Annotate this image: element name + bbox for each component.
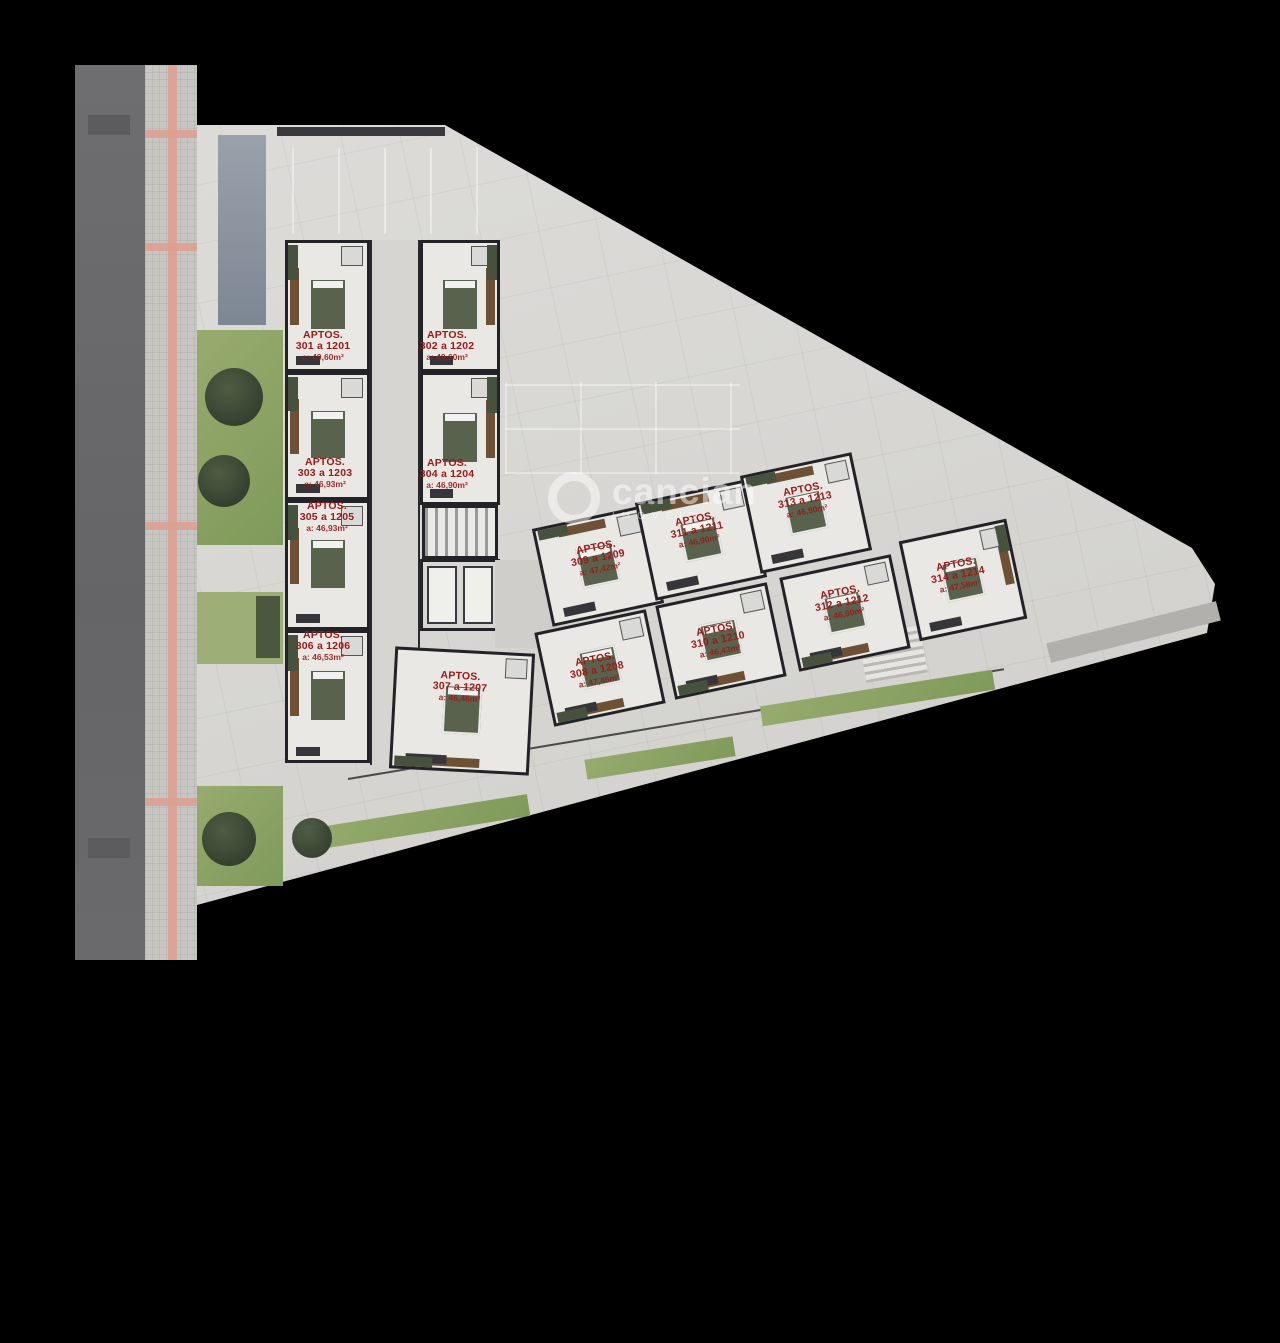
unit-label: APTOS.304 a 1204a: 46,90m² xyxy=(420,458,475,490)
unit-label: APTOS.306 a 1206a: 46,53m² xyxy=(296,630,351,662)
tree xyxy=(202,812,256,866)
watermark-text: cancian IMÓVEIS xyxy=(612,475,757,522)
grass-area xyxy=(197,330,283,545)
watermark: cancian IMÓVEIS xyxy=(548,472,757,524)
watermark-brand: cancian xyxy=(612,471,757,512)
kitchen-counter xyxy=(296,747,320,756)
unit-label: APTOS.301 a 1201a: 49,60m² xyxy=(296,330,351,362)
tree xyxy=(205,368,263,426)
watermark-logo-icon xyxy=(548,472,600,524)
watermark-subtitle: IMÓVEIS xyxy=(612,511,757,522)
unit-label-range: 305 a 1205 xyxy=(300,512,355,523)
bed-pillow xyxy=(445,414,475,421)
balcony-planter xyxy=(288,377,298,411)
bed-pillow xyxy=(445,281,475,288)
elevators xyxy=(420,559,500,631)
sidewalk-accent-stripe xyxy=(145,130,197,138)
bed-pillow xyxy=(313,412,343,419)
unit-label-range: 301 a 1201 xyxy=(296,341,351,352)
parking-lines xyxy=(505,382,740,474)
street-patch xyxy=(88,115,130,135)
balcony-planter xyxy=(995,524,1010,552)
kitchen-counter xyxy=(430,489,452,498)
unit-label-range: 303 a 1203 xyxy=(298,468,353,479)
tree xyxy=(198,455,250,507)
unit-label: APTOS.303 a 1203a: 46,93m² xyxy=(298,457,353,489)
balcony-planter xyxy=(556,707,588,723)
unit-label-area: a: 46,90m² xyxy=(420,481,475,490)
balcony-planter xyxy=(288,245,298,280)
bathroom xyxy=(341,378,363,398)
bed-pillow xyxy=(313,672,343,679)
bathroom xyxy=(864,562,890,586)
boundary-wall xyxy=(277,127,445,136)
unit-label-area: a: 46,93m² xyxy=(300,524,355,533)
unit-label: APTOS.307 a 1207a: 46,46m² xyxy=(432,670,488,705)
kitchen-counter xyxy=(666,576,700,592)
bed-pillow xyxy=(313,281,343,288)
site-plan: cancian IMÓVEIS APTOS.301 a 1201a: 49,60… xyxy=(0,0,1280,1031)
unit-label-area: a: 49,60m² xyxy=(420,353,475,362)
apartment-unit xyxy=(389,646,535,775)
entrance-canopy xyxy=(218,135,266,325)
unit-label-range: 304 a 1204 xyxy=(420,469,475,480)
balcony-planter xyxy=(677,680,709,696)
balcony-planter xyxy=(487,245,497,280)
bathroom xyxy=(505,658,528,679)
stairs xyxy=(422,505,498,559)
tree xyxy=(292,818,332,858)
kitchen-counter xyxy=(930,616,962,631)
parking-lines xyxy=(292,148,478,234)
kitchen-counter xyxy=(296,614,320,623)
bathroom xyxy=(341,246,363,266)
elevator-shaft xyxy=(463,566,493,624)
hedge xyxy=(256,596,280,658)
kitchen-counter xyxy=(771,549,805,565)
street-patch xyxy=(88,838,130,858)
elevator-shaft xyxy=(427,566,457,624)
unit-label: APTOS.305 a 1205a: 46,93m² xyxy=(300,501,355,533)
sidewalk-accent-stripe xyxy=(145,243,197,251)
sidewalk-accent-stripe xyxy=(168,65,177,960)
bed-pillow xyxy=(313,541,343,548)
balcony-planter xyxy=(394,756,432,768)
unit-label-range: 302 a 1202 xyxy=(420,341,475,352)
street xyxy=(75,65,145,960)
sidewalk-accent-stripe xyxy=(145,522,197,530)
sidewalk-accent-stripe xyxy=(145,798,197,806)
unit-label-area: a: 46,93m² xyxy=(298,480,353,489)
balcony-planter xyxy=(537,525,569,541)
balcony-planter xyxy=(487,377,497,413)
unit-label-range: 306 a 1206 xyxy=(296,641,351,652)
balcony-planter xyxy=(288,505,298,540)
unit-label-area: a: 49,60m² xyxy=(296,353,351,362)
unit-label-area: a: 46,53m² xyxy=(296,653,351,662)
bathroom xyxy=(740,590,766,614)
unit-label: APTOS.302 a 1202a: 49,60m² xyxy=(420,330,475,362)
kitchen-counter xyxy=(563,602,597,618)
bathroom xyxy=(619,617,645,641)
balcony-planter xyxy=(801,652,833,668)
